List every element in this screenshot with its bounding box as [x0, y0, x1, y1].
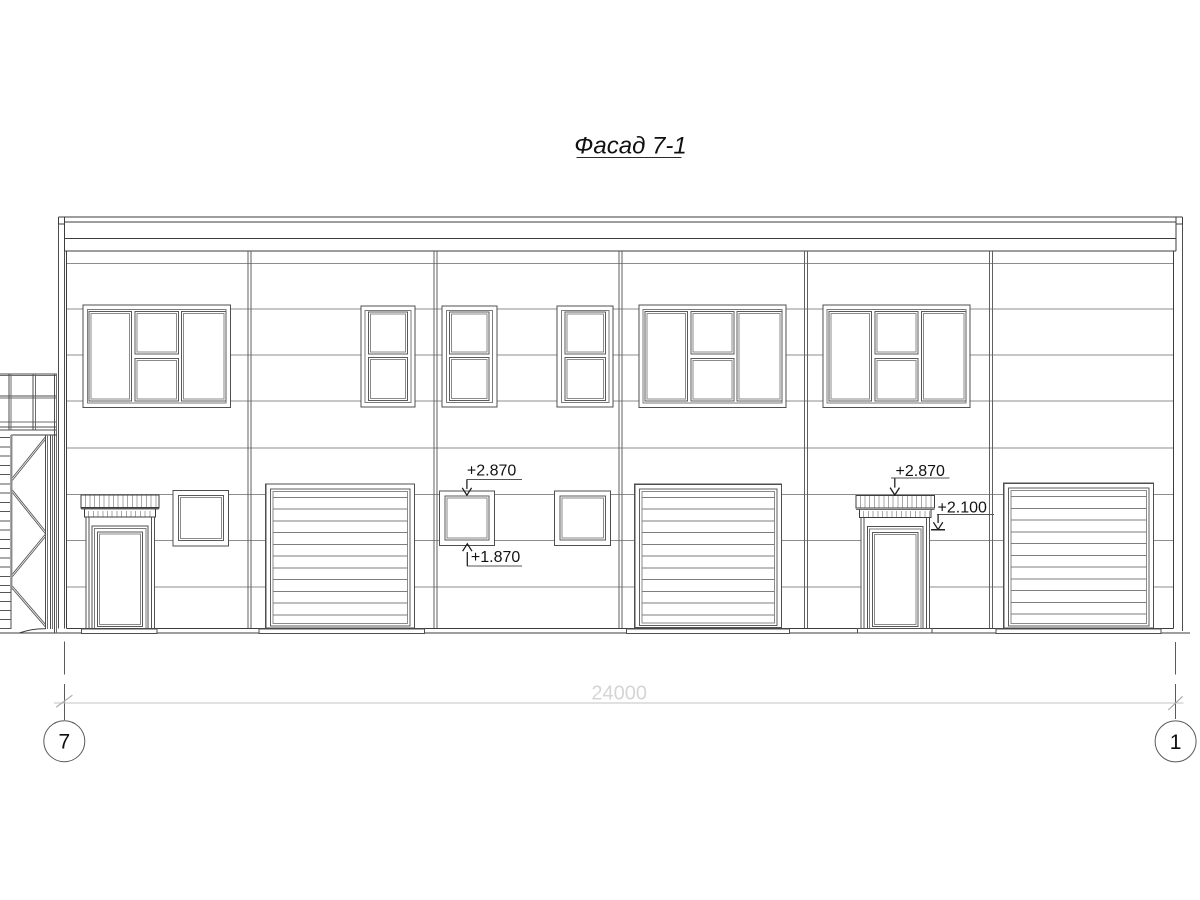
svg-text:7: 7 [58, 731, 70, 754]
svg-text:24000: 24000 [591, 682, 647, 704]
svg-text:1: 1 [1170, 731, 1182, 754]
svg-text:Фасад 7-1: Фасад 7-1 [574, 133, 686, 160]
svg-text:+1.870: +1.870 [471, 549, 520, 566]
svg-text:+2.870: +2.870 [896, 463, 945, 480]
svg-text:+2.870: +2.870 [467, 462, 516, 479]
